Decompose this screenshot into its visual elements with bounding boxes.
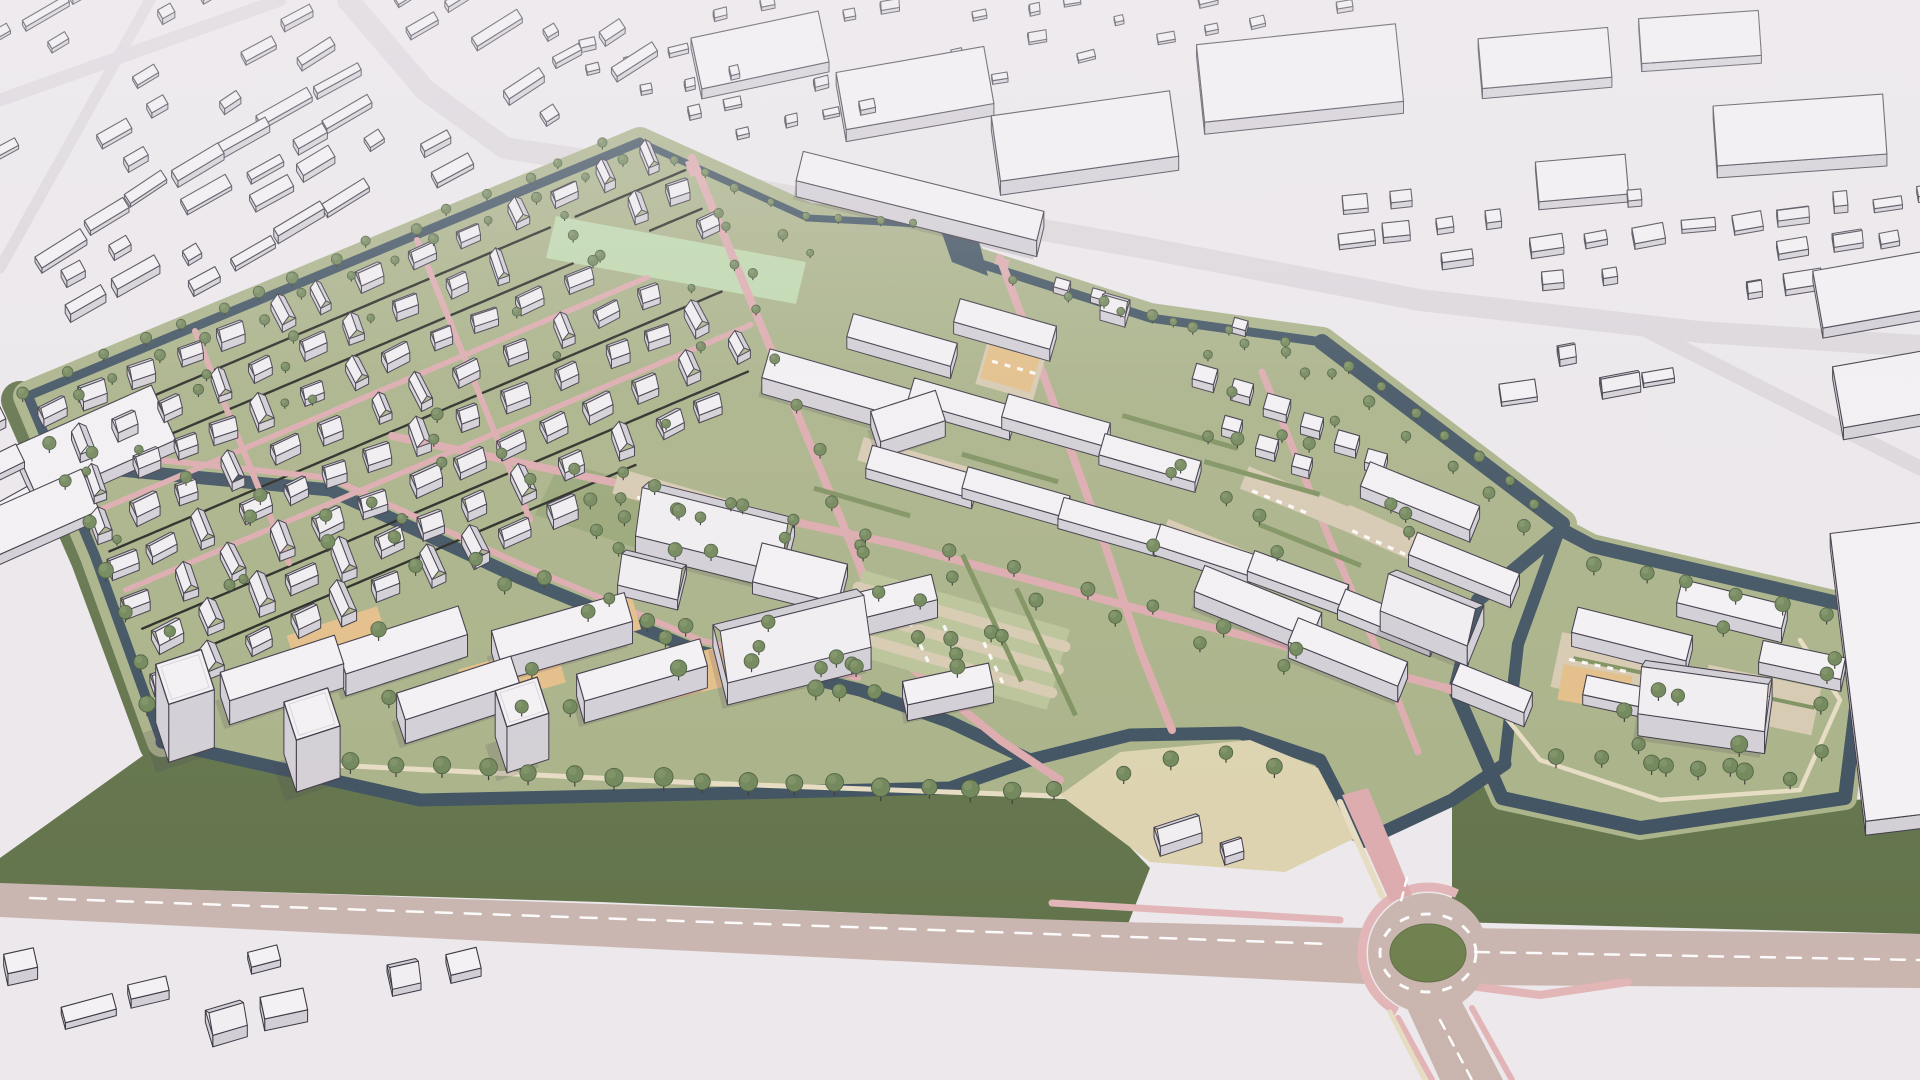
tree-canopy-highlight [738, 500, 744, 506]
tree-canopy-highlight [1304, 438, 1310, 444]
context-building [1114, 15, 1124, 26]
tree-canopy-highlight [1777, 598, 1785, 606]
tree-canopy-highlight [923, 781, 931, 789]
context-building [1390, 189, 1412, 209]
tree-canopy-highlight [1176, 460, 1182, 466]
building-roof [1535, 154, 1628, 202]
tree-canopy-highlight [1401, 508, 1407, 514]
building-roof [1114, 15, 1124, 23]
tree-canopy-highlight [617, 493, 622, 498]
tree-canopy-highlight [614, 543, 620, 549]
tree-canopy-highlight [945, 632, 952, 639]
tree-canopy-highlight [135, 446, 139, 450]
apartment-slab [1256, 435, 1279, 462]
building-roof [1485, 209, 1502, 223]
tree-canopy-highlight [1402, 432, 1407, 437]
tree-canopy-highlight [1228, 387, 1233, 392]
tree-canopy-highlight [963, 781, 972, 790]
tree-canopy-highlight [803, 213, 807, 217]
tree-canopy-highlight [689, 285, 693, 289]
tree-canopy-highlight [516, 701, 523, 708]
tree-canopy-highlight [100, 350, 105, 355]
tree-canopy-highlight [1412, 409, 1417, 414]
tree-canopy-highlight [75, 390, 80, 395]
tree-canopy-highlight [156, 350, 161, 355]
tree-canopy-highlight [1829, 653, 1836, 660]
tree-canopy-highlight [592, 525, 598, 531]
tree-canopy-highlight [792, 400, 798, 406]
tree-canopy-highlight [1204, 351, 1208, 355]
context-building [1478, 27, 1612, 98]
tree-canopy-highlight [696, 513, 701, 518]
tree-canopy-highlight [470, 553, 477, 560]
context-building [1530, 233, 1564, 258]
tree-canopy-highlight [1254, 510, 1261, 517]
tree-canopy-highlight [1822, 668, 1829, 675]
tree-canopy-highlight [1821, 609, 1828, 616]
apartment-slab [1192, 363, 1218, 392]
context-building [992, 72, 1008, 84]
tree-canopy-highlight [438, 458, 443, 463]
building-roof [1382, 220, 1410, 237]
tree-canopy-highlight [680, 619, 687, 626]
tree-canopy-highlight [569, 231, 574, 236]
tree-canopy-highlight [483, 190, 487, 194]
context-building [785, 113, 798, 128]
tree-canopy-highlight [910, 220, 914, 224]
tree-canopy-highlight [482, 760, 491, 769]
tree-canopy-highlight [1065, 293, 1069, 297]
tree-canopy-highlight [1218, 620, 1225, 627]
tree-canopy-highlight [282, 399, 286, 403]
tree-canopy-highlight [768, 199, 771, 202]
tree-canopy-highlight [142, 333, 148, 339]
tree-canopy-highlight [282, 363, 286, 367]
tree-canopy-highlight [287, 273, 293, 279]
tree-canopy-highlight [1005, 783, 1014, 792]
tree-canopy-highlight [1048, 783, 1056, 791]
tree-canopy-highlight [809, 681, 817, 689]
tree-canopy-highlight [674, 505, 681, 512]
roof-light [685, 77, 695, 87]
tree-canopy-highlight [1226, 327, 1230, 331]
tree-canopy-highlight [944, 545, 951, 552]
roundabout-island [1390, 924, 1466, 982]
tree-canopy-highlight [87, 447, 93, 453]
tree-canopy-highlight [1550, 750, 1558, 758]
building-roof [1390, 189, 1412, 203]
context-building [729, 65, 740, 81]
tree-canopy-highlight [1730, 589, 1737, 596]
tree-canopy-highlight [135, 656, 142, 663]
context-building [1639, 10, 1762, 71]
context-building [1535, 154, 1628, 210]
tree-canopy-highlight [715, 209, 720, 214]
context-building [1436, 216, 1454, 235]
tree-canopy-highlight [754, 641, 760, 647]
tree-canopy-highlight [1082, 583, 1089, 590]
tree-canopy-highlight [1519, 520, 1525, 526]
tree-canopy-highlight [1633, 739, 1640, 746]
tree-canopy-highlight [570, 464, 576, 470]
context-building [1602, 267, 1618, 286]
tree-canopy-highlight [874, 587, 880, 593]
roof-light [1747, 280, 1762, 293]
tree-canopy-highlight [948, 572, 954, 578]
context-building [1732, 211, 1763, 236]
tree-canopy-highlight [1660, 759, 1668, 767]
tree-canopy-highlight [650, 480, 656, 486]
tree-canopy-highlight [565, 701, 572, 708]
tree-canopy-highlight [1148, 601, 1154, 607]
tree-canopy-highlight [605, 594, 611, 600]
context-building [1681, 217, 1715, 233]
tree-canopy-highlight [702, 169, 706, 173]
context-building [1205, 23, 1219, 35]
tree-canopy-highlight [1118, 767, 1125, 774]
tree-canopy-highlight [1738, 764, 1747, 773]
context-building [1746, 279, 1762, 299]
tree-canopy-highlight [706, 545, 713, 552]
tree-canopy-highlight [430, 435, 435, 440]
tree-canopy-highlight [850, 660, 857, 667]
tree-canopy-highlight [513, 308, 518, 313]
tree-canopy-highlight [526, 474, 532, 480]
tree-canopy-highlight [261, 315, 266, 320]
building-roof [640, 83, 652, 92]
tree-canopy-highlight [1596, 752, 1603, 759]
tree-canopy-highlight [114, 536, 118, 540]
tree-canopy-highlight [44, 437, 51, 444]
tree-canopy-highlight [1221, 747, 1228, 754]
tree-canopy-highlight [538, 572, 545, 579]
tree-canopy-highlight [660, 632, 667, 639]
tree-canopy-highlight [194, 385, 199, 390]
tree-canopy-highlight [109, 374, 114, 379]
tree-canopy-highlight [1204, 432, 1209, 437]
tree-canopy-highlight [1195, 638, 1201, 644]
tree-canopy-highlight [83, 468, 87, 472]
tree-canopy-highlight [225, 580, 231, 586]
tree-canopy-highlight [1475, 452, 1480, 457]
tree-canopy-highlight [641, 615, 648, 622]
tree-canopy-highlight [596, 251, 601, 256]
tree-canopy-highlight [140, 697, 148, 705]
tree-canopy-highlight [18, 388, 24, 394]
tree-canopy-highlight [1642, 567, 1649, 574]
tree-canopy-highlight [1241, 340, 1246, 345]
tree-canopy-highlight [389, 532, 395, 538]
context-building [1342, 193, 1368, 214]
masterplan-3d-render [0, 0, 1920, 1080]
tree-canopy-highlight [554, 352, 558, 356]
tree-canopy-highlight [1484, 488, 1490, 494]
tree-canopy-highlight [568, 767, 576, 775]
tree-canopy-highlight [662, 420, 667, 425]
building-roof [1713, 94, 1887, 166]
tree-canopy-highlight [731, 261, 735, 265]
tree-canopy-highlight [1588, 558, 1595, 565]
tree-canopy-highlight [913, 632, 919, 638]
context-building [972, 9, 987, 21]
tree-canopy-highlight [807, 250, 811, 254]
tree-canopy-highlight [697, 342, 702, 347]
tree-canopy-highlight [1222, 492, 1228, 498]
tree-canopy-highlight [1167, 468, 1172, 473]
context-building [387, 959, 421, 997]
tree-canopy-highlight [1110, 611, 1117, 618]
tree-canopy-highlight [619, 468, 624, 473]
context-building [1029, 2, 1040, 16]
tree-canopy-highlight [309, 396, 313, 400]
tree-canopy-highlight [245, 511, 251, 517]
tree-canopy-highlight [442, 205, 447, 210]
tree-canopy-highlight [951, 660, 959, 668]
tree-canopy-highlight [816, 662, 822, 668]
tree-canopy-highlight [915, 595, 921, 601]
tree-canopy-highlight [372, 623, 380, 631]
tree-canopy-highlight [1331, 417, 1336, 422]
tree-canopy-highlight [1618, 704, 1626, 712]
tree-canopy-highlight [861, 530, 867, 536]
tree-canopy-highlight [1692, 762, 1700, 770]
tree-canopy-highlight [412, 225, 417, 230]
context-building [736, 127, 749, 140]
tree-canopy-highlight [1118, 308, 1122, 312]
tree-canopy-highlight [696, 775, 704, 783]
context-building [4, 948, 38, 986]
context-building [684, 77, 695, 91]
tree-canopy-highlight [731, 184, 735, 188]
context-building [1833, 191, 1848, 214]
tree-canopy-highlight [951, 649, 958, 656]
tree-canopy-highlight [410, 560, 417, 567]
tree-canopy-highlight [827, 497, 833, 503]
tree-canopy-highlight [1165, 752, 1173, 760]
tree-canopy-highlight [398, 514, 403, 519]
tree-canopy-highlight [1328, 369, 1332, 373]
context-building [688, 104, 702, 120]
tree-canopy-highlight [332, 255, 337, 260]
tree-canopy-highlight [201, 333, 206, 338]
tree-canopy-highlight [1282, 338, 1287, 343]
context-building [1713, 94, 1887, 178]
tree-canopy-highlight [746, 655, 753, 662]
apartment-slab [1232, 317, 1248, 336]
tree-canopy-highlight [599, 138, 604, 143]
tree-canopy-highlight [522, 766, 530, 774]
tree-canopy-highlight [435, 758, 444, 767]
tree-canopy-highlight [1785, 773, 1792, 780]
tree-canopy-highlight [1345, 362, 1350, 367]
tree-canopy-highlight [858, 547, 864, 553]
context-building [880, 0, 900, 14]
tree-canopy-highlight [499, 578, 506, 585]
tree-canopy-highlight [368, 315, 372, 319]
tree-canopy-highlight [827, 775, 836, 784]
building-roof [843, 8, 856, 18]
tree-canopy-highlight [986, 626, 993, 633]
tree-canopy-highlight [1009, 276, 1013, 280]
context-building [1542, 270, 1565, 291]
tree-canopy-highlight [873, 779, 882, 788]
tree-canopy-highlight [348, 272, 352, 276]
tree-canopy-highlight [1673, 690, 1680, 697]
tree-canopy-highlight [120, 606, 127, 613]
tree-canopy-highlight [997, 630, 1003, 636]
tree-canopy-highlight [527, 174, 532, 179]
tree-canopy-highlight [84, 516, 91, 523]
building-roof [1833, 191, 1848, 207]
tree-canopy-highlight [1278, 431, 1283, 436]
tree-canopy-highlight [1279, 660, 1285, 666]
tree-canopy-highlight [1232, 433, 1239, 440]
context-building [1499, 379, 1537, 406]
tree-canopy-highlight [1189, 323, 1194, 328]
tree-canopy-highlight [1653, 684, 1660, 691]
tree-canopy-highlight [1148, 311, 1154, 317]
tree-canopy-highlight [1681, 576, 1688, 583]
context-building [1879, 230, 1900, 249]
tree-canopy-highlight [527, 663, 534, 670]
tree-canopy-highlight [362, 237, 367, 242]
tree-canopy-highlight [392, 256, 396, 260]
tree-canopy-highlight [607, 770, 616, 779]
tree-canopy-highlight [533, 193, 538, 198]
tree-canopy-highlight [383, 691, 390, 698]
tree-canopy-highlight [1291, 643, 1298, 650]
context-building [1028, 30, 1047, 45]
tree-canopy-highlight [671, 157, 675, 161]
tree-canopy-highlight [432, 409, 438, 415]
tree-canopy-highlight [203, 370, 208, 375]
tree-canopy-highlight [181, 472, 187, 478]
tree-canopy-highlight [1645, 756, 1653, 764]
tree-canopy-highlight [255, 489, 262, 496]
tree-canopy-highlight [430, 234, 435, 239]
tree-canopy-highlight [1268, 760, 1276, 768]
building-roof [688, 104, 702, 116]
tree-canopy-highlight [619, 512, 625, 518]
roof-light [1559, 344, 1577, 360]
tree-canopy-highlight [322, 536, 329, 543]
context-building [1336, 0, 1353, 13]
tree-canopy-highlight [289, 332, 294, 337]
tree-canopy-highlight [60, 476, 66, 482]
tree-canopy-highlight [1030, 594, 1037, 601]
tree-canopy-highlight [63, 367, 68, 372]
tree-canopy-highlight [1530, 500, 1535, 505]
context-building [1157, 31, 1176, 45]
context-building [1485, 209, 1502, 230]
tree-canopy-highlight [878, 217, 882, 221]
building-roof [1436, 216, 1454, 229]
tree-canopy-highlight [1816, 746, 1823, 753]
tree-canopy-highlight [589, 256, 594, 261]
tree-canopy-highlight [1724, 759, 1731, 766]
tree-canopy-highlight [585, 494, 592, 501]
tree-canopy-highlight [727, 499, 732, 504]
tree-canopy-highlight [741, 774, 750, 783]
context-building [843, 8, 856, 21]
tree-canopy-highlight [815, 444, 821, 450]
tree-canopy-highlight [1170, 318, 1174, 322]
tree-canopy-highlight [1301, 368, 1306, 373]
tree-canopy-highlight [1441, 432, 1446, 437]
tree-canopy-highlight [554, 159, 558, 163]
building-roof [1342, 193, 1368, 210]
tree-canopy-highlight [240, 575, 245, 580]
tree-canopy-highlight [583, 606, 590, 613]
context-building [1777, 206, 1810, 227]
building-roof [1478, 27, 1612, 88]
tree-canopy-highlight [779, 230, 784, 235]
tree-canopy-highlight [497, 449, 502, 454]
tree-canopy-highlight [582, 173, 586, 177]
tree-canopy-highlight [789, 515, 795, 521]
building-roof [1542, 270, 1565, 285]
context-building [859, 98, 876, 115]
tree-canopy-highlight [831, 651, 838, 658]
building-roof [729, 65, 740, 76]
tree-canopy-highlight [1282, 348, 1287, 353]
tree-canopy-highlight [1365, 396, 1371, 402]
tree-canopy-highlight [177, 320, 182, 325]
context-building [640, 83, 652, 95]
tree-canopy-highlight [99, 564, 107, 572]
context-building [1557, 343, 1576, 367]
tree-canopy-highlight [619, 155, 624, 160]
tree-canopy-highlight [298, 289, 303, 294]
tree-canopy-highlight [321, 510, 327, 516]
tree-canopy-highlight [390, 758, 398, 766]
tree-canopy-highlight [763, 616, 770, 623]
tree-canopy-highlight [485, 217, 489, 221]
tree-canopy-highlight [344, 754, 353, 763]
tree-canopy-highlight [1718, 622, 1724, 628]
tree-canopy-highlight [1378, 383, 1382, 387]
context-building [1382, 220, 1410, 243]
tree-canopy-highlight [672, 661, 680, 669]
tree-canopy-highlight [1272, 546, 1278, 552]
apartment-slab [1301, 413, 1324, 440]
tree-canopy-highlight [1506, 477, 1511, 482]
building-roof [1627, 189, 1642, 201]
roof-light [1030, 2, 1041, 13]
tree-canopy-highlight [1405, 527, 1411, 533]
tree-canopy-highlight [835, 215, 839, 219]
apartment-slab [1292, 453, 1313, 478]
tree-canopy-highlight [562, 212, 566, 216]
tree-canopy-highlight [669, 544, 676, 551]
tree-canopy-highlight [869, 686, 876, 693]
tree-canopy-highlight [856, 541, 861, 546]
tree-canopy-highlight [780, 533, 786, 539]
tree-canopy-highlight [723, 223, 727, 227]
tree-canopy-highlight [656, 769, 665, 778]
masterplan-viewport [0, 0, 1920, 1080]
tree-canopy-highlight [749, 269, 754, 274]
tree-canopy-highlight [1732, 737, 1741, 746]
tree-canopy-highlight [165, 626, 171, 632]
context-building [1832, 229, 1863, 252]
tree-canopy-highlight [1449, 462, 1454, 467]
tree-canopy-highlight [254, 287, 260, 293]
tree-canopy-highlight [1815, 698, 1822, 705]
tree-canopy-highlight [1386, 499, 1392, 505]
tree-canopy-highlight [753, 306, 757, 310]
tree-canopy-highlight [788, 776, 796, 784]
